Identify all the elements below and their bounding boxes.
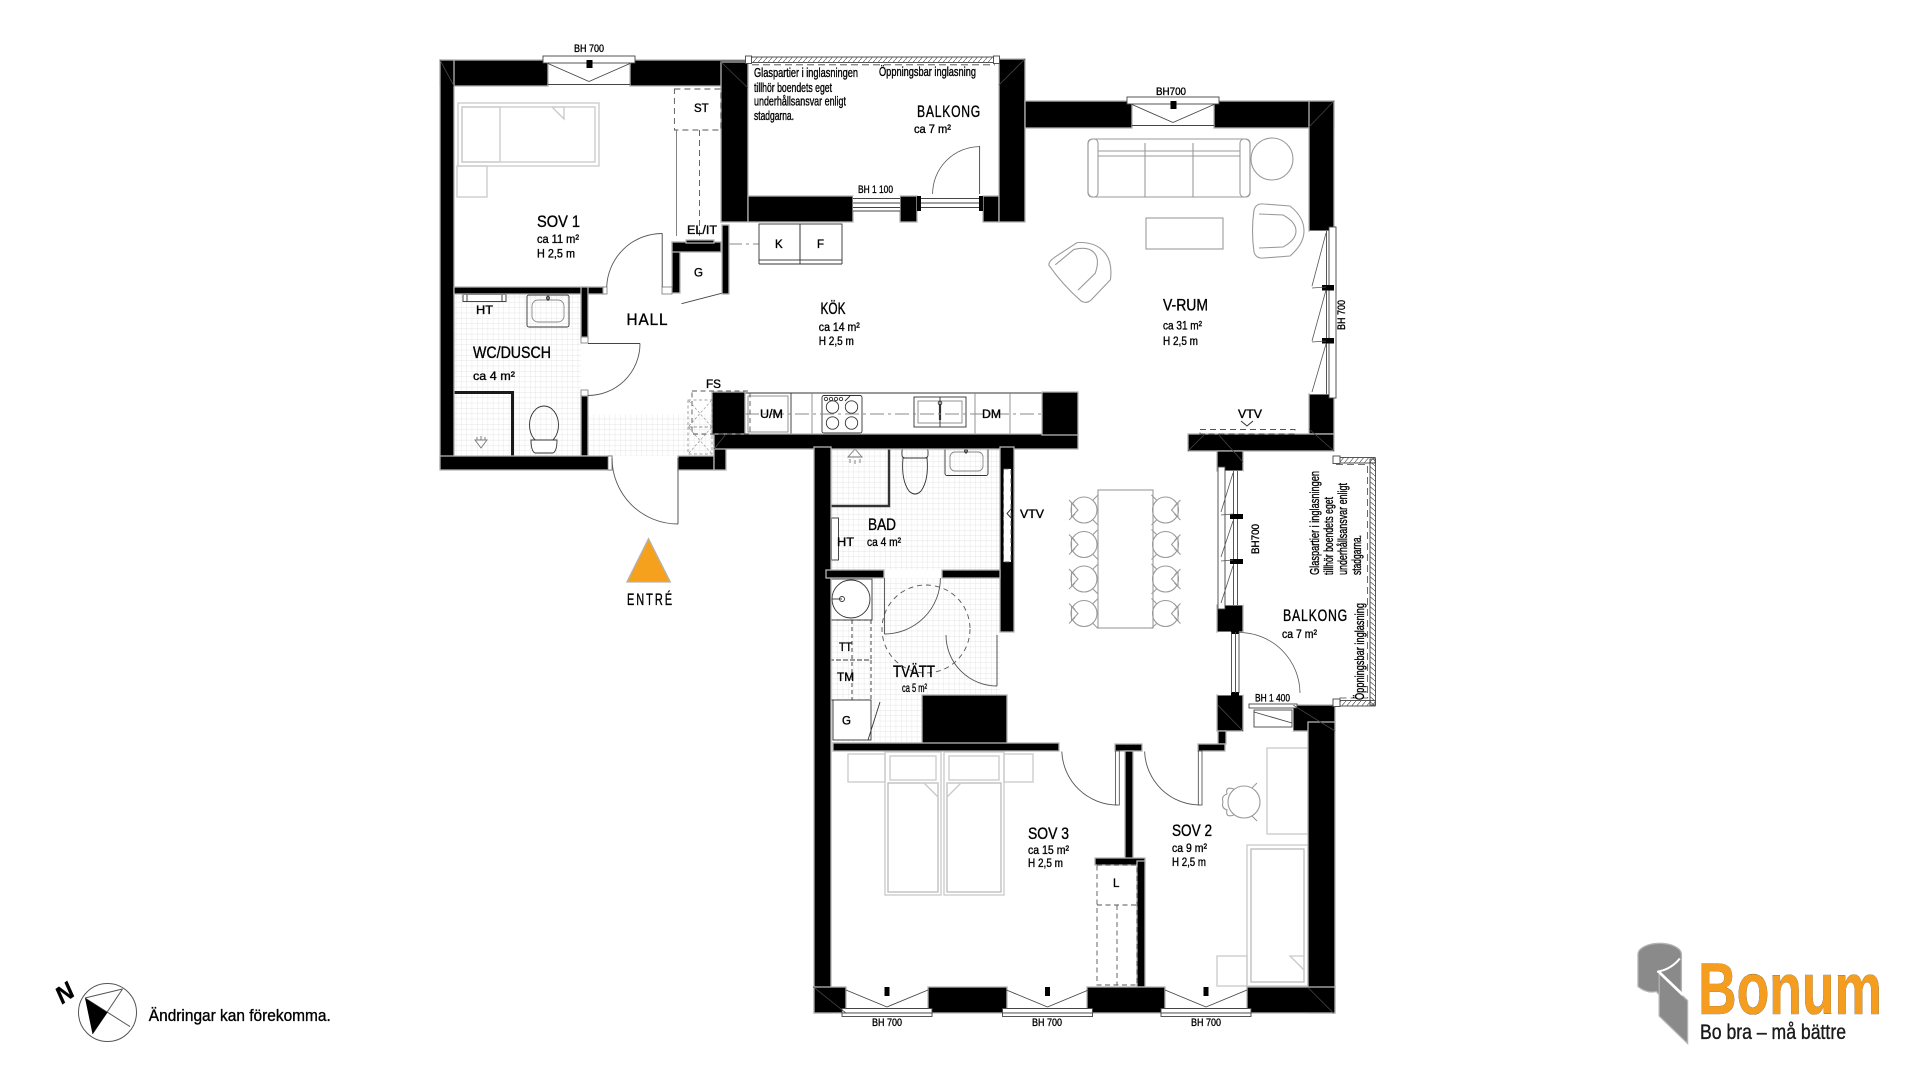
svg-text:BH700: BH700 (1156, 86, 1186, 98)
svg-text:underhållsansvar enligt: underhållsansvar enligt (1336, 483, 1350, 575)
svg-text:HALL: HALL (627, 311, 669, 329)
svg-text:ca 31 m²: ca 31 m² (1163, 319, 1202, 333)
svg-text:BALKONG: BALKONG (917, 103, 981, 121)
svg-text:ca 15 m²: ca 15 m² (1028, 843, 1069, 857)
svg-text:ENTRÉ: ENTRÉ (627, 590, 674, 609)
svg-text:HT: HT (476, 305, 493, 317)
svg-text:underhållsansvar enligt: underhållsansvar enligt (754, 95, 846, 109)
svg-text:ca 14 m²: ca 14 m² (819, 320, 860, 334)
svg-text:EL/IT: EL/IT (687, 225, 717, 237)
svg-text:TM: TM (837, 672, 854, 684)
svg-text:H 2,5 m: H 2,5 m (537, 247, 575, 261)
svg-text:ca 7 m²: ca 7 m² (1282, 627, 1317, 641)
svg-text:tillhör boendets eget: tillhör boendets eget (1322, 497, 1336, 575)
svg-text:BH 700: BH 700 (1191, 1017, 1221, 1029)
svg-text:BH 700: BH 700 (1336, 300, 1348, 330)
svg-text:SOV 2: SOV 2 (1172, 822, 1212, 840)
svg-text:FS: FS (706, 379, 721, 391)
svg-text:VTV: VTV (1020, 509, 1044, 521)
svg-text:H 2,5 m: H 2,5 m (819, 334, 854, 348)
svg-text:SOV 3: SOV 3 (1028, 825, 1069, 843)
svg-text:Ändringar kan förekomma.: Ändringar kan förekomma. (149, 1007, 331, 1025)
svg-text:ca 9 m²: ca 9 m² (1172, 841, 1207, 855)
svg-text:H 2,5 m: H 2,5 m (1172, 855, 1206, 869)
svg-text:K: K (775, 239, 783, 251)
svg-text:TT: TT (839, 642, 852, 654)
svg-text:Bo bra – må bättre: Bo bra – må bättre (1700, 1021, 1846, 1044)
svg-text:ca 11 m²: ca 11 m² (537, 232, 579, 246)
svg-text:tillhör boendets eget: tillhör boendets eget (754, 81, 832, 95)
svg-text:SOV 1: SOV 1 (537, 213, 580, 231)
svg-text:ST: ST (694, 103, 709, 115)
svg-text:stadgarna.: stadgarna. (754, 109, 794, 123)
svg-text:BH 700: BH 700 (1032, 1017, 1062, 1029)
svg-text:H 2,5 m: H 2,5 m (1028, 856, 1063, 870)
svg-text:BH 700: BH 700 (872, 1017, 902, 1029)
svg-text:Glaspartier i inglasningen: Glaspartier i inglasningen (1308, 471, 1322, 575)
svg-text:Öppningsbar inglasning: Öppningsbar inglasning (1353, 603, 1367, 700)
svg-text:U/M: U/M (760, 409, 783, 421)
svg-text:V-RUM: V-RUM (1163, 297, 1208, 315)
svg-text:F: F (817, 239, 824, 251)
svg-text:G: G (694, 268, 703, 280)
svg-text:ca 5 m²: ca 5 m² (902, 681, 927, 695)
svg-text:KÖK: KÖK (821, 300, 846, 318)
svg-text:H 2,5 m: H 2,5 m (1163, 334, 1198, 348)
svg-text:ca 7 m²: ca 7 m² (914, 122, 951, 136)
svg-text:DM: DM (982, 409, 1001, 421)
svg-text:BH 1 100: BH 1 100 (858, 184, 893, 196)
svg-text:BH 700: BH 700 (574, 43, 604, 55)
svg-text:HT: HT (837, 537, 854, 549)
svg-text:BAD: BAD (868, 516, 896, 534)
svg-text:ca 4 m²: ca 4 m² (867, 535, 901, 549)
svg-text:TVÄTT: TVÄTT (893, 663, 935, 681)
svg-text:BALKONG: BALKONG (1283, 607, 1348, 625)
svg-text:Öppningsbar inglasning: Öppningsbar inglasning (879, 65, 976, 79)
svg-text:VTV: VTV (1238, 409, 1262, 421)
svg-text:BH 1 400: BH 1 400 (1255, 693, 1290, 705)
svg-text:ca 4 m²: ca 4 m² (473, 369, 515, 383)
svg-text:WC/DUSCH: WC/DUSCH (473, 344, 551, 362)
svg-text:L: L (1113, 878, 1120, 890)
svg-text:G: G (842, 716, 851, 728)
svg-text:Glaspartier i inglasningen: Glaspartier i inglasningen (754, 66, 858, 80)
svg-text:Bonum: Bonum (1698, 949, 1882, 1030)
svg-text:BH700: BH700 (1250, 524, 1262, 554)
svg-text:stadgarna.: stadgarna. (1350, 535, 1364, 575)
